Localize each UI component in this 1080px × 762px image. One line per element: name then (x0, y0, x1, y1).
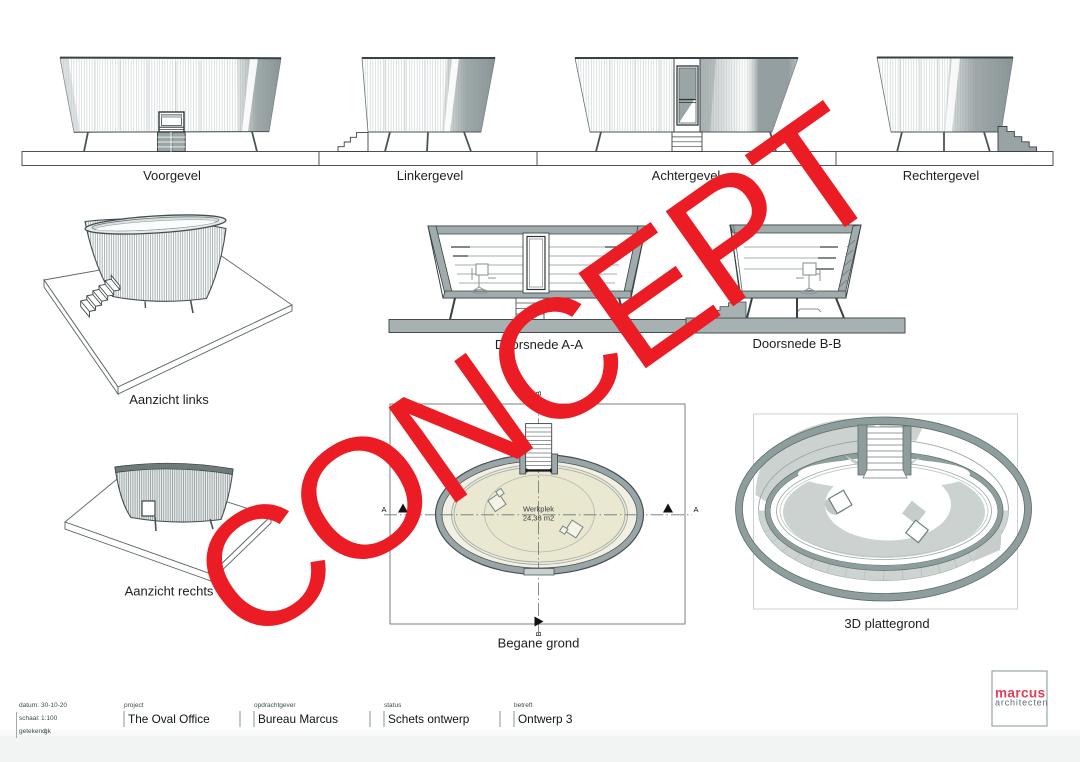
svg-text:datum:: datum: (19, 702, 39, 709)
svg-text:1:100: 1:100 (41, 715, 58, 722)
svg-text:Bureau Marcus: Bureau Marcus (258, 712, 338, 726)
svg-text:Rechtergevel: Rechtergevel (903, 168, 980, 183)
svg-text:30-10-20: 30-10-20 (41, 702, 67, 709)
svg-text:A: A (693, 505, 698, 514)
svg-text:Werkplek: Werkplek (523, 505, 554, 514)
svg-text:opdrachtgever: opdrachtgever (254, 702, 296, 709)
svg-text:architecten: architecten (995, 698, 1048, 708)
svg-text:Voorgevel: Voorgevel (143, 168, 201, 183)
svg-text:3D plattegrond: 3D plattegrond (844, 616, 929, 631)
svg-text:Aanzicht links: Aanzicht links (129, 392, 209, 407)
svg-text:Doorsnede B-B: Doorsnede B-B (753, 336, 842, 351)
svg-text:Ontwerp 3: Ontwerp 3 (518, 712, 573, 726)
svg-text:24,38 m2: 24,38 m2 (523, 514, 554, 523)
svg-text:Begane grond: Begane grond (498, 636, 580, 651)
svg-text:gk: gk (44, 728, 52, 735)
svg-text:project: project (124, 702, 144, 709)
svg-text:Linkergevel: Linkergevel (397, 168, 464, 183)
svg-text:status: status (384, 702, 402, 709)
svg-text:schaal:: schaal: (19, 715, 40, 722)
svg-text:Schets ontwerp: Schets ontwerp (388, 712, 470, 726)
svg-text:betreft: betreft (514, 702, 533, 709)
svg-text:The Oval Office: The Oval Office (128, 712, 210, 726)
